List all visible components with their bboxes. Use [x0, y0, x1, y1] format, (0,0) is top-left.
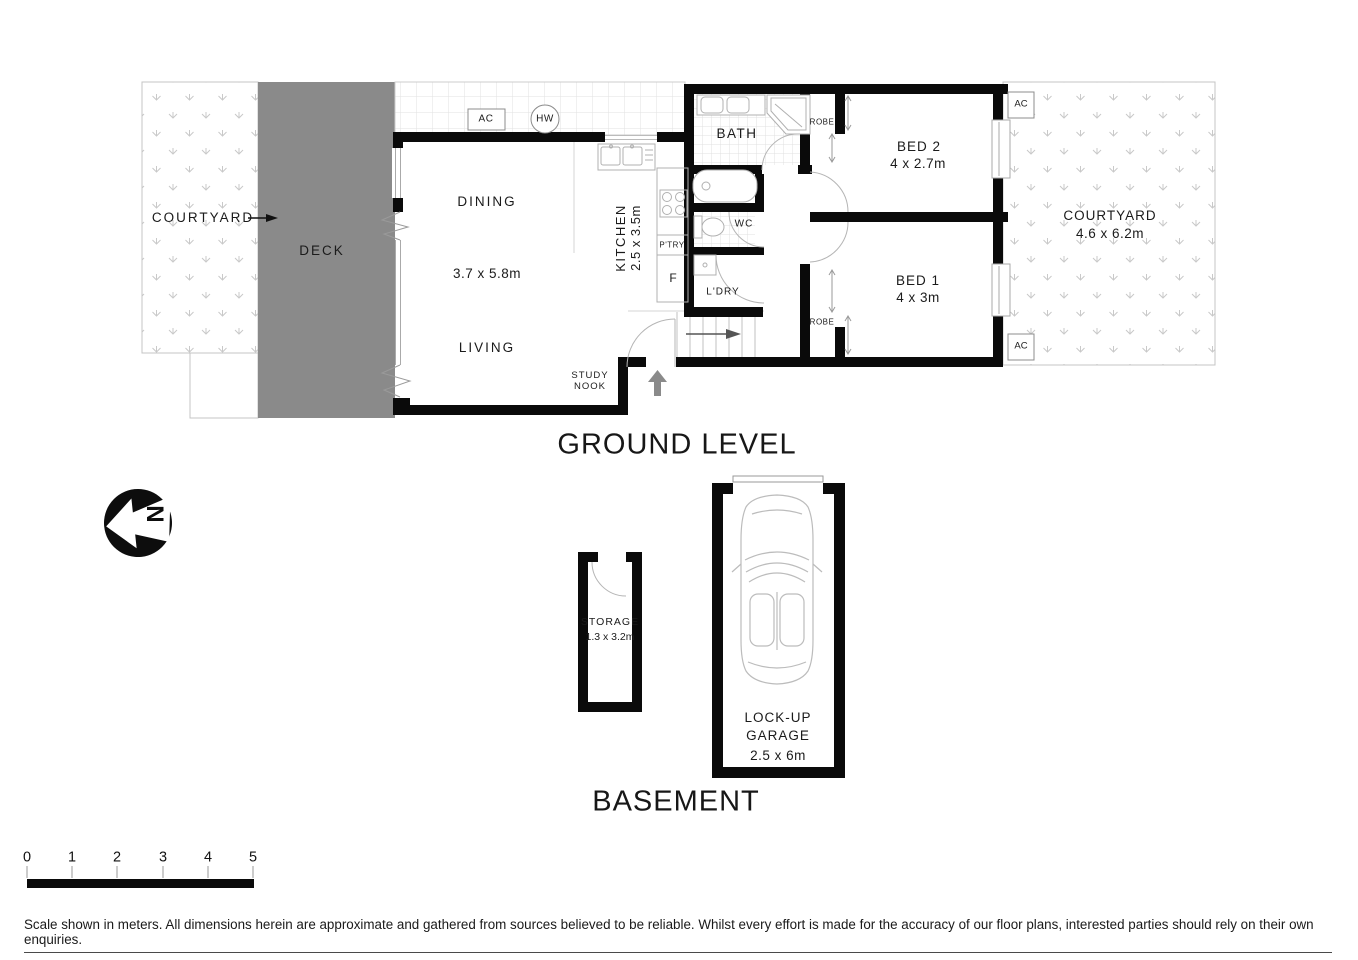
- basement-heading: BASEMENT: [592, 785, 760, 818]
- kitchen-label: KITCHEN 2.5 x 3.5m: [614, 204, 644, 272]
- ground-level-heading: GROUND LEVEL: [557, 428, 796, 461]
- ac-right-bottom-label: AC: [1014, 342, 1027, 353]
- garage-label-line2: GARAGE: [746, 728, 810, 744]
- car-icon: [732, 495, 822, 684]
- scale-tick-5: 5: [249, 850, 257, 867]
- bed2-label: BED 2: [897, 139, 941, 155]
- storage-label: STORAGE: [581, 616, 639, 628]
- storage-dims: 1.3 x 3.2m: [585, 631, 634, 643]
- scale-tick-2: 2: [113, 850, 121, 867]
- laundry-tub: [694, 255, 716, 275]
- fridge-label: F: [669, 272, 676, 286]
- scale-tick-3: 3: [159, 850, 167, 867]
- north-compass-icon: N: [101, 486, 177, 561]
- bed2-robe-label: ROBE: [810, 117, 835, 126]
- scale-tick-4: 4: [204, 850, 212, 867]
- bed1-dims: 4 x 3m: [896, 290, 940, 306]
- compass-north-label: N: [143, 505, 170, 522]
- bathtub: [693, 170, 757, 202]
- courtyard-right-label: COURTYARD: [1063, 208, 1156, 224]
- bed2-dims: 4 x 2.7m: [890, 156, 946, 172]
- living-dining-dims: 3.7 x 5.8m: [453, 266, 521, 282]
- toilet: [694, 216, 724, 238]
- courtyard-left-label: COURTYARD: [152, 210, 254, 226]
- deck-label: DECK: [299, 243, 345, 259]
- courtyard-right-dims: 4.6 x 6.2m: [1076, 226, 1144, 242]
- wc-label: WC: [735, 218, 754, 230]
- courtyard-left-area: [142, 82, 258, 418]
- garage-door: [733, 476, 823, 482]
- pantry-label: P'TRY: [659, 240, 684, 249]
- bath-label: BATH: [716, 126, 757, 142]
- bed1-label: BED 1: [896, 273, 940, 289]
- study-nook-label: STUDY NOOK: [571, 371, 608, 393]
- laundry-label: L'DRY: [706, 286, 739, 298]
- scale-bar: [27, 866, 254, 888]
- scale-tick-0: 0: [23, 850, 31, 867]
- garage-label-line1: LOCK-UP: [744, 710, 811, 726]
- living-label: LIVING: [459, 340, 515, 356]
- ac-box-label: AC: [479, 113, 494, 125]
- bed1-robe-label: ROBE: [810, 317, 835, 326]
- stove: [660, 190, 687, 217]
- disclaimer-text: Scale shown in meters. All dimensions he…: [24, 917, 1332, 953]
- entry-arrow-icon: [648, 370, 667, 396]
- floor-plan-page: N: [0, 0, 1358, 960]
- hw-unit-label: HW: [536, 113, 554, 125]
- dining-label: DINING: [457, 194, 516, 210]
- scale-tick-1: 1: [68, 850, 76, 867]
- ac-right-top-label: AC: [1014, 100, 1027, 111]
- stair-direction-arrow: [686, 329, 741, 339]
- garage-dims: 2.5 x 6m: [750, 748, 806, 764]
- vanity: [697, 95, 765, 115]
